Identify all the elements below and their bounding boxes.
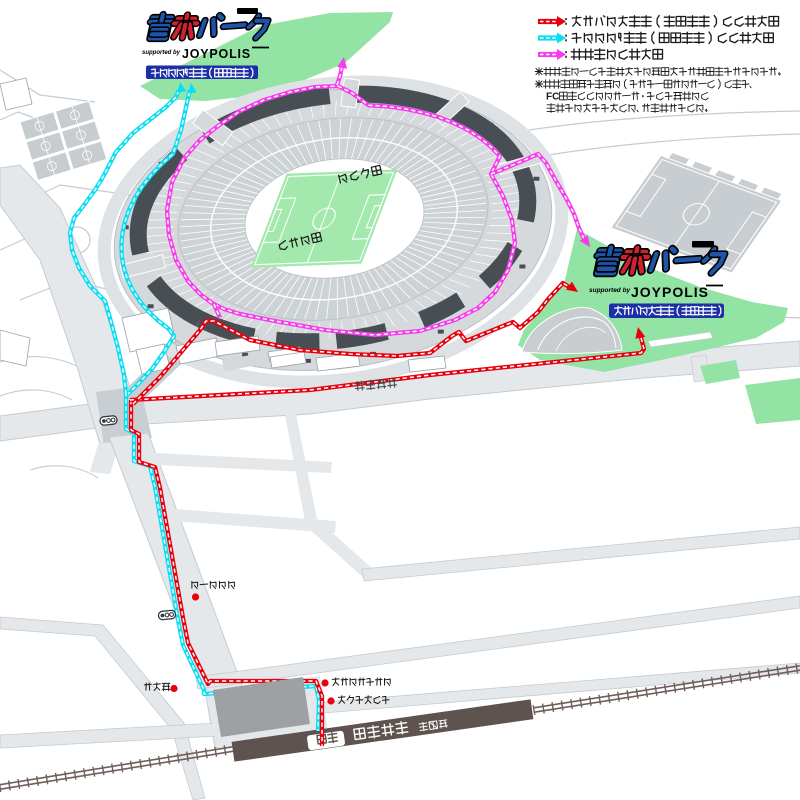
svg-text:JOYPOLIS: JOYPOLIS: [631, 284, 709, 300]
svg-text:supported by: supported by: [142, 50, 181, 56]
svg-text:FC: FC: [546, 92, 559, 103]
svg-text:JOYPOLIS: JOYPOLIS: [182, 47, 251, 61]
svg-text:supported by: supported by: [589, 287, 631, 294]
